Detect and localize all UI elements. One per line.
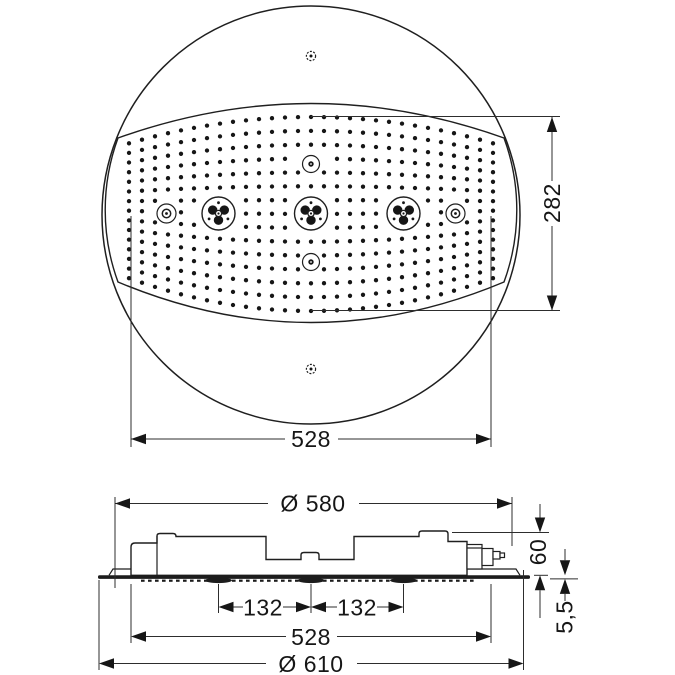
ring-nozzle-right <box>446 204 465 223</box>
dim-label-5-5: 5,5 <box>552 600 578 633</box>
dim-label-60: 60 <box>525 539 551 566</box>
dimension-132-pair: 132 132 <box>219 584 404 621</box>
side-view: Ø 580 60 5,5 132 132 <box>98 491 578 675</box>
dim-label-528-side: 528 <box>291 624 331 650</box>
dim-label-132-right: 132 <box>337 595 377 621</box>
screw-top <box>306 51 315 60</box>
top-view: 282 528 <box>102 6 565 452</box>
screw-bottom <box>306 364 315 373</box>
dim-label-580: Ø 580 <box>280 491 345 517</box>
dim-label-528-top: 528 <box>291 426 331 452</box>
shower-dimension-drawing: 282 528 <box>0 0 675 675</box>
dim-label-610: Ø 610 <box>278 651 343 675</box>
water-connector <box>467 545 505 570</box>
dim-label-282: 282 <box>539 183 565 223</box>
ring-nozzle-left <box>157 204 176 223</box>
nozzle-cluster-left <box>202 197 235 230</box>
nozzle-cluster-center <box>295 197 328 230</box>
shower-body-profile <box>131 531 467 575</box>
ring-nozzle-top <box>303 156 320 173</box>
dim-label-132-left: 132 <box>243 595 283 621</box>
technical-drawing-page: 282 528 <box>0 0 675 675</box>
ring-nozzle-bottom <box>303 254 320 271</box>
nozzle-cluster-right <box>387 197 420 230</box>
